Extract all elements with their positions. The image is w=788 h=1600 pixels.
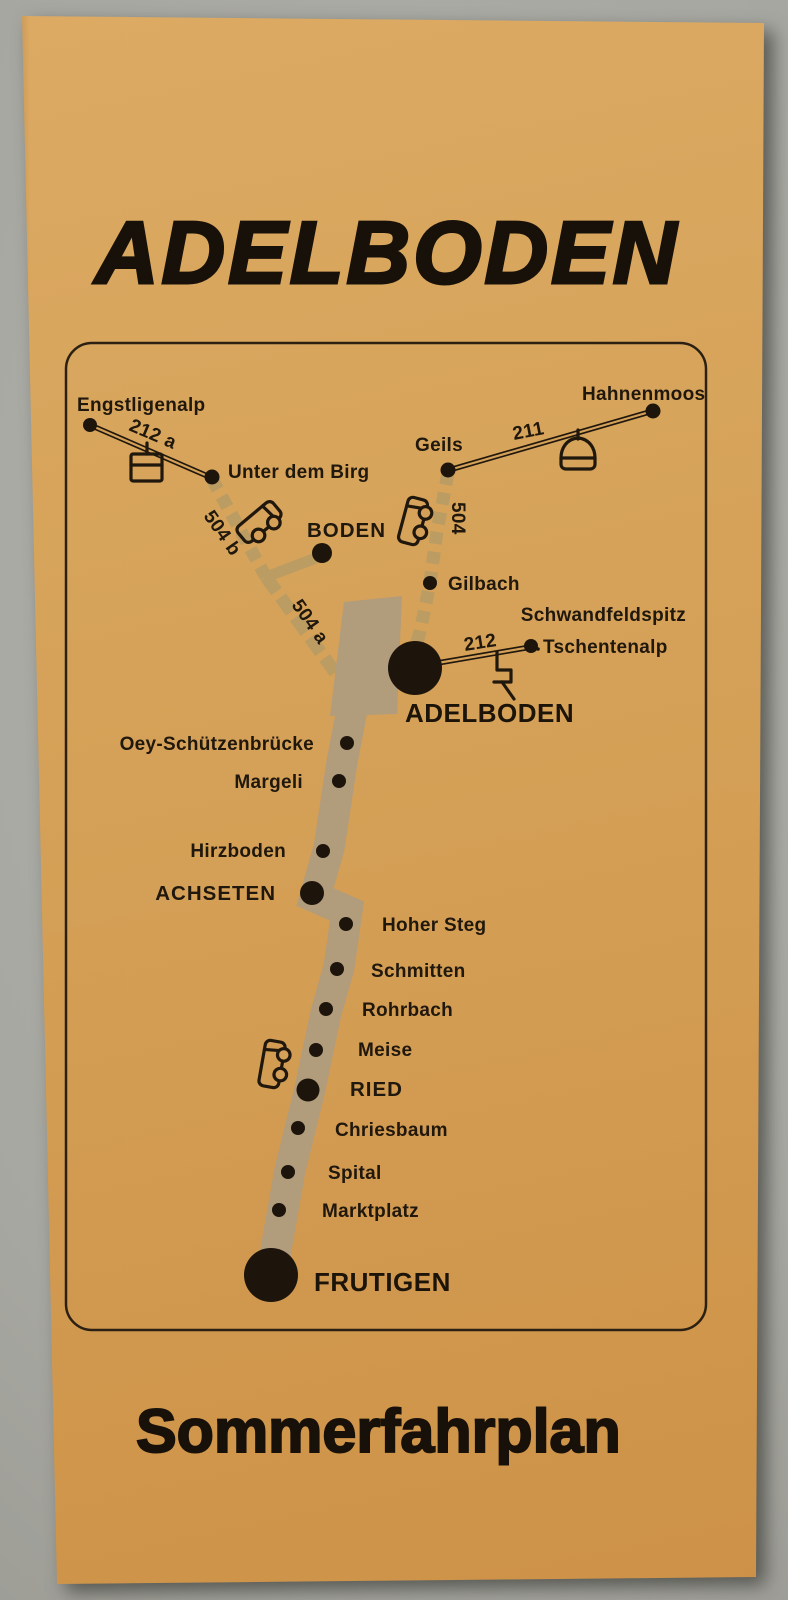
station-dot-meise: [309, 1043, 323, 1057]
station-label-achseten: ACHSETEN: [155, 882, 276, 905]
station-dot-tschentenalp: [524, 639, 538, 653]
brochure-cover: ADELBODEN: [0, 0, 788, 1600]
route-label-212a: 212 a: [126, 415, 179, 454]
brochure-subtitle: Sommerfahrplan: [136, 1396, 621, 1466]
station-dot-hahnenmoos: [646, 404, 661, 419]
station-label-margeli: Margeli: [234, 772, 303, 793]
station-dot-margeli: [332, 774, 346, 788]
station-label-hoher-steg: Hoher Steg: [382, 915, 486, 936]
peak-label-schwandfeldspitz: Schwandfeldspitz: [521, 605, 686, 626]
station-label-adelboden: ADELBODEN: [405, 698, 574, 728]
station-label-engstligenalp: Engstligenalp: [77, 395, 205, 416]
map-frame: [66, 343, 706, 1330]
station-label-unter-dem-birg: Unter dem Birg: [228, 462, 369, 483]
bus-icon-504: [397, 496, 434, 547]
station-label-frutigen: FRUTIGEN: [314, 1267, 451, 1297]
station-label-tschentenalp: Tschentenalp: [543, 637, 668, 658]
route-map: Engstligenalp 212 a Unter dem Birg Hahne…: [0, 0, 788, 1600]
roads: [212, 473, 448, 1272]
bus-icon-ried: [258, 1040, 292, 1090]
station-dot-geils: [441, 463, 456, 478]
station-dot-unter-dem-birg: [205, 470, 220, 485]
station-label-boden: BODEN: [307, 519, 386, 542]
station-label-marktplatz: Marktplatz: [322, 1201, 419, 1222]
station-label-hirzboden: Hirzboden: [190, 841, 286, 862]
cableway-211-gap: [449, 411, 653, 470]
station-label-spital: Spital: [328, 1163, 382, 1184]
route-label-504: 504: [447, 502, 468, 535]
station-dot-engstligenalp: [83, 418, 97, 432]
station-dot-hoher-steg: [339, 917, 353, 931]
station-dot-adelboden: [388, 641, 442, 695]
surface-lift-icon: [494, 652, 514, 699]
station-dot-gilbach: [423, 576, 437, 590]
aerial-tramway-icon: [131, 443, 162, 481]
station-dot-oey: [340, 736, 354, 750]
station-dot-marktplatz: [272, 1203, 286, 1217]
road-boden-spur: [266, 558, 316, 577]
station-label-schmitten: Schmitten: [371, 961, 466, 982]
station-dot-hirzboden: [316, 844, 330, 858]
station-dot-rohrbach: [319, 1002, 333, 1016]
station-dot-chriesbaum: [291, 1121, 305, 1135]
station-label-oey: Oey-Schützenbrücke: [120, 734, 314, 755]
brochure: ADELBODEN: [0, 0, 788, 1600]
station-labels: Engstligenalp 212 a Unter dem Birg Hahne…: [77, 384, 705, 1297]
station-label-hahnenmoos: Hahnenmoos: [582, 384, 705, 405]
station-label-gilbach: Gilbach: [448, 574, 520, 595]
station-dot-schmitten: [330, 962, 344, 976]
tschentenalp-tick-dot: [536, 647, 540, 651]
station-label-chriesbaum: Chriesbaum: [335, 1120, 448, 1141]
station-dot-spital: [281, 1165, 295, 1179]
station-label-meise: Meise: [358, 1040, 412, 1061]
station-dot-boden: [312, 543, 332, 563]
road-main: [272, 710, 352, 1272]
station-dot-achseten: [300, 881, 324, 905]
station-dot-frutigen: [244, 1248, 298, 1302]
station-label-geils: Geils: [415, 435, 463, 456]
station-dot-ried: [297, 1079, 320, 1102]
station-label-rohrbach: Rohrbach: [362, 1000, 453, 1021]
photo-background: ADELBODEN: [0, 0, 788, 1600]
station-label-ried: RIED: [350, 1078, 403, 1101]
